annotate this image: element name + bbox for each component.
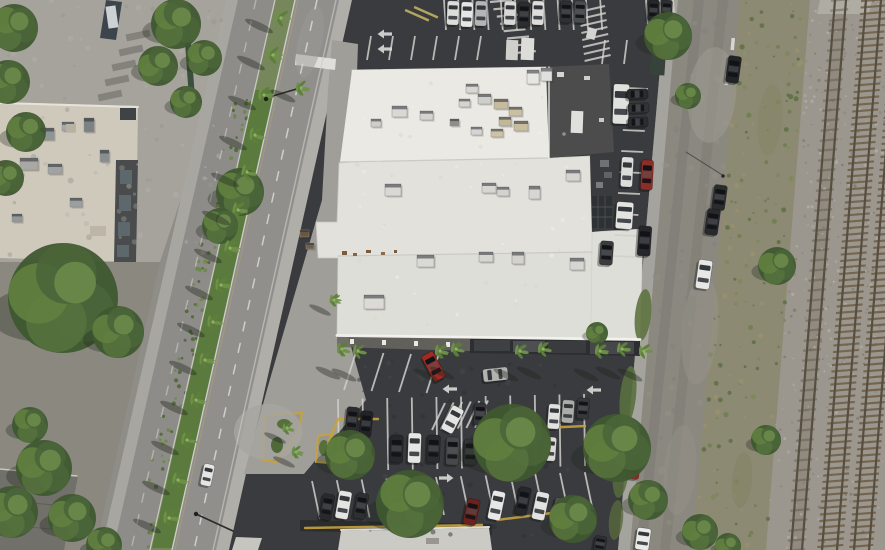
palm-crown [518, 349, 521, 352]
rooftop-hvac-unit [100, 150, 111, 164]
texture-dot [833, 281, 835, 283]
texture-dot [408, 135, 412, 139]
unit-vent [527, 70, 539, 74]
texture-dot [388, 404, 391, 407]
car-rear-glass [533, 16, 542, 20]
rooftop-hvac-unit [566, 170, 582, 183]
car-body [635, 527, 652, 550]
texture-dot [844, 52, 847, 55]
unit-vent [466, 84, 478, 87]
texture-dot [750, 531, 754, 535]
texture-dot [804, 94, 807, 97]
texture-dot [785, 546, 788, 549]
car-roof [361, 420, 370, 426]
texture-dot [745, 131, 748, 134]
texture-dot [862, 8, 863, 9]
palm-crown [332, 298, 335, 301]
texture-dot [746, 136, 749, 139]
texture-dot [173, 192, 179, 198]
tree-highlight [23, 119, 38, 134]
car [638, 160, 654, 193]
texture-dot [146, 179, 150, 183]
texture-dot [13, 201, 16, 204]
texture-dot [181, 357, 184, 360]
texture-dot [212, 125, 214, 127]
unit-vent [566, 170, 580, 173]
unit-vent [479, 252, 493, 255]
car-rear-glass [428, 452, 438, 457]
texture-dot [770, 415, 774, 419]
tree-highlight [27, 413, 41, 427]
tree-highlight [774, 254, 788, 268]
texture-dot [786, 100, 788, 102]
car-roof [561, 9, 570, 14]
texture-dot [734, 183, 739, 188]
texture-dot [801, 252, 803, 254]
texture-dot [713, 470, 715, 472]
texture-dot [787, 450, 790, 453]
texture-dot [848, 184, 850, 186]
texture-dot [679, 274, 684, 279]
texture-dot [798, 60, 803, 65]
texture-dot [508, 133, 511, 136]
detail-mark [394, 250, 397, 253]
car-windshield [448, 442, 458, 447]
texture-dot [707, 397, 711, 401]
texture-dot [769, 500, 770, 501]
rooftop-hvac-unit [70, 198, 84, 209]
texture-dot [191, 337, 195, 341]
car-windshield [602, 245, 612, 250]
texture-dot [222, 149, 224, 151]
texture-dot [809, 86, 812, 89]
texture-dot [792, 63, 795, 66]
aerial-scene [0, 0, 885, 550]
texture-dot [871, 213, 873, 215]
texture-dot [161, 455, 163, 457]
car [472, 1, 487, 28]
texture-dot [174, 378, 178, 382]
texture-dot [818, 68, 821, 71]
texture-dot [708, 444, 712, 448]
rooftop-hvac-unit [459, 99, 472, 109]
car-windshield [449, 5, 458, 9]
palm-crown [253, 133, 256, 136]
texture-dot [125, 5, 129, 9]
palm-crown [271, 53, 274, 56]
car [557, 1, 572, 26]
texture-dot [865, 312, 867, 314]
texture-dot [722, 293, 727, 298]
texture-dot [772, 219, 777, 224]
texture-dot [866, 267, 868, 269]
texture-dot [399, 133, 403, 137]
texture-dot [840, 182, 842, 184]
car-windshield [348, 411, 357, 416]
unit-vent [570, 258, 584, 262]
texture-dot [562, 132, 566, 136]
car [530, 1, 545, 27]
texture-dot [751, 394, 756, 399]
car-roof [428, 445, 438, 451]
texture-dot [197, 280, 200, 283]
car [458, 2, 473, 29]
detail-mark [120, 108, 136, 120]
texture-dot [355, 162, 360, 167]
texture-dot [716, 469, 718, 471]
texture-dot [804, 278, 807, 281]
rooftop-hvac-unit [491, 129, 505, 139]
parking-stripe [621, 151, 643, 152]
detail-mark [571, 111, 584, 133]
texture-dot [730, 224, 734, 228]
texture-dot [822, 358, 824, 360]
car-windshield [534, 5, 543, 9]
texture-dot [773, 56, 775, 58]
car-windshield [520, 6, 529, 11]
texture-dot [742, 152, 744, 154]
car [635, 225, 652, 258]
texture-dot [867, 285, 869, 287]
texture-dot [832, 216, 834, 218]
texture-dot [845, 95, 847, 97]
texture-dot [860, 346, 863, 349]
texture-dot [811, 225, 814, 228]
palm-crown [279, 16, 282, 19]
texture-dot [763, 282, 765, 284]
car-body [447, 1, 460, 25]
texture-dot [882, 86, 885, 89]
texture-dot [530, 533, 533, 536]
parking-stripe [615, 235, 637, 236]
texture-dot [730, 200, 733, 203]
unit-vent [497, 187, 509, 190]
palm-crown [340, 347, 343, 350]
palm-crown [285, 426, 288, 429]
texture-dot [426, 323, 429, 326]
texture-dot [803, 367, 805, 369]
texture-dot [840, 139, 842, 141]
texture-dot [671, 407, 679, 415]
rooftop-hvac-unit [84, 118, 96, 134]
unit-vent [385, 184, 401, 188]
texture-dot [760, 302, 764, 306]
texture-dot [868, 222, 870, 224]
car-roof [636, 104, 640, 111]
texture-dot [41, 116, 45, 120]
texture-dot [724, 221, 726, 223]
palm-crown [167, 516, 170, 519]
texture-dot [807, 406, 809, 408]
texture-dot [241, 124, 244, 127]
texture-dot [882, 461, 884, 463]
texture-dot [240, 128, 243, 131]
texture-dot [811, 19, 814, 22]
car-rear-glass [519, 17, 528, 21]
texture-dot [816, 458, 819, 461]
texture-dot [827, 329, 830, 332]
car [571, 1, 586, 26]
texture-dot [674, 152, 682, 160]
texture-dot [742, 173, 746, 177]
texture-dot [508, 362, 511, 365]
detail-mark [90, 226, 106, 236]
texture-dot [357, 378, 361, 382]
texture-dot [824, 307, 827, 310]
texture-dot [229, 156, 233, 160]
texture-dot [733, 278, 736, 281]
texture-dot [803, 482, 805, 484]
texture-dot [674, 189, 678, 193]
texture-dot [796, 129, 799, 132]
texture-dot [790, 3, 792, 5]
car-windshield [650, 4, 658, 8]
rooftop-hvac-unit [12, 214, 24, 224]
streetlight-head [264, 97, 268, 101]
texture-dot [796, 505, 798, 507]
texture-dot [755, 41, 759, 45]
texture-dot [145, 86, 148, 89]
texture-dot [246, 99, 248, 101]
texture-dot [725, 507, 728, 510]
tree-highlight [697, 520, 711, 534]
texture-dot [856, 89, 858, 91]
rooftop-hvac-unit [499, 117, 513, 128]
car-windshield [579, 401, 588, 405]
car-body [532, 1, 545, 25]
car-rear-glass [642, 178, 651, 183]
texture-dot [175, 397, 178, 400]
texture-dot [806, 172, 808, 174]
car-roof [475, 411, 484, 416]
texture-dot [794, 389, 796, 391]
texture-dot [819, 108, 822, 111]
rooftop-hvac-unit [48, 164, 64, 176]
texture-dot [392, 415, 397, 420]
texture-dot [164, 440, 167, 443]
texture-dot [825, 281, 827, 283]
texture-dot [841, 164, 844, 167]
texture-dot [788, 110, 792, 114]
texture-dot [654, 381, 662, 389]
car-windshield [643, 165, 652, 171]
texture-dot [844, 123, 846, 125]
texture-dot [455, 165, 458, 168]
texture-dot [232, 109, 235, 112]
texture-dot [106, 163, 110, 167]
detail-mark [426, 538, 439, 544]
detail-mark [596, 182, 603, 188]
unit-vent [306, 243, 314, 245]
texture-dot [181, 144, 185, 148]
texture-dot [195, 267, 199, 271]
texture-dot [757, 240, 760, 243]
car-roof [642, 171, 651, 177]
car-rear-glass [476, 16, 485, 20]
texture-dot [148, 478, 151, 481]
texture-dot [715, 410, 720, 415]
texture-dot [388, 376, 391, 379]
texture-dot [826, 31, 829, 34]
car [502, 1, 517, 27]
texture-dot [689, 263, 695, 269]
rooftop-hvac-unit [482, 183, 498, 195]
car-windshield [632, 105, 636, 112]
texture-dot [692, 21, 697, 26]
car [626, 117, 648, 130]
texture-dot [746, 113, 751, 118]
car-rear-glass [641, 104, 644, 111]
rooftop-hvac-unit [497, 187, 511, 198]
dark-shingle-roof [546, 64, 614, 158]
detail-mark [557, 72, 564, 77]
texture-dot [737, 234, 741, 238]
texture-dot [194, 240, 198, 244]
texture-dot [796, 443, 798, 445]
tree-highlight [726, 538, 736, 548]
texture-dot [776, 173, 781, 178]
texture-dot [783, 300, 787, 304]
unit-vent [300, 230, 309, 232]
texture-dot [697, 399, 704, 406]
rooftop-hvac-unit [417, 255, 436, 269]
car-rear-glass [563, 414, 572, 418]
car [559, 399, 575, 425]
texture-dot [804, 100, 807, 103]
car-rear-glass [448, 16, 457, 20]
texture-dot [65, 107, 70, 112]
texture-dot [803, 289, 805, 291]
texture-dot [214, 246, 217, 249]
texture-dot [725, 260, 729, 264]
texture-dot [211, 19, 217, 25]
texture-dot [470, 186, 472, 188]
texture-dot [878, 326, 881, 329]
texture-dot [534, 285, 538, 289]
detail-mark [117, 245, 129, 257]
texture-dot [738, 279, 743, 284]
texture-dot [810, 100, 813, 103]
texture-dot [823, 370, 825, 372]
texture-dot [717, 444, 721, 448]
texture-dot [861, 191, 863, 193]
texture-dot [791, 293, 794, 296]
texture-dot [844, 205, 845, 206]
texture-dot [748, 32, 751, 35]
texture-dot [734, 302, 738, 306]
rooftop-hvac-unit [527, 70, 541, 86]
texture-dot [233, 114, 236, 117]
palm-crown [236, 208, 239, 211]
texture-dot [383, 474, 389, 480]
unit-vent [12, 214, 22, 216]
unit-vent [84, 118, 94, 122]
texture-dot [150, 7, 155, 12]
texture-dot [879, 111, 882, 114]
texture-dot [727, 391, 731, 395]
texture-dot [807, 205, 810, 208]
car [445, 1, 460, 27]
texture-dot [735, 125, 737, 127]
car-windshield [564, 404, 573, 409]
texture-dot [375, 318, 378, 321]
texture-dot [235, 136, 238, 139]
texture-dot [821, 92, 823, 94]
car [574, 397, 590, 421]
texture-dot [866, 535, 869, 538]
texture-dot [802, 139, 805, 142]
tree-highlight [201, 46, 215, 60]
texture-dot [749, 74, 751, 76]
detail-mark [521, 38, 535, 60]
texture-dot [807, 144, 810, 147]
texture-dot [646, 392, 651, 397]
texture-dot [788, 72, 790, 74]
car-roof [347, 416, 356, 422]
texture-dot [784, 333, 786, 335]
texture-dot [808, 41, 810, 43]
texture-dot [865, 113, 867, 115]
texture-dot [177, 384, 181, 388]
car-roof [649, 8, 657, 13]
texture-dot [807, 224, 808, 225]
texture-dot [802, 112, 805, 115]
unit-vent [20, 158, 38, 162]
texture-dot [718, 366, 720, 368]
texture-dot [752, 123, 755, 126]
tree-highlight [54, 262, 96, 304]
texture-dot [856, 160, 858, 162]
texture-dot [826, 355, 828, 357]
texture-dot [659, 436, 664, 441]
car-roof [519, 11, 528, 16]
texture-dot [817, 475, 819, 477]
texture-dot [835, 161, 838, 164]
texture-dot [752, 212, 754, 214]
texture-dot [819, 152, 822, 155]
texture-dot [541, 96, 544, 99]
texture-dot [77, 6, 79, 8]
car-roof [391, 445, 401, 451]
texture-dot [835, 411, 838, 414]
texture-dot [68, 178, 74, 184]
texture-dot [802, 444, 805, 447]
texture-dot [838, 236, 840, 238]
texture-dot [136, 5, 142, 11]
rooftop-hvac-unit [512, 252, 526, 266]
texture-dot [727, 174, 731, 178]
car [387, 435, 403, 466]
texture-dot [776, 45, 780, 49]
streetlight-head [721, 174, 725, 178]
texture-dot [783, 437, 786, 440]
texture-dot [835, 260, 838, 263]
texture-dot [856, 37, 858, 39]
texture-dot [744, 62, 747, 65]
texture-dot [775, 424, 777, 426]
tree-highlight [40, 450, 61, 471]
texture-dot [178, 66, 182, 70]
rooftop-hvac-unit [479, 252, 495, 264]
texture-dot [739, 346, 741, 348]
texture-dot [484, 280, 488, 284]
texture-dot [813, 346, 815, 348]
texture-dot [816, 89, 819, 92]
tree-highlight [506, 417, 536, 447]
texture-dot [752, 340, 756, 344]
car-windshield [550, 408, 559, 413]
texture-dot [794, 536, 797, 539]
